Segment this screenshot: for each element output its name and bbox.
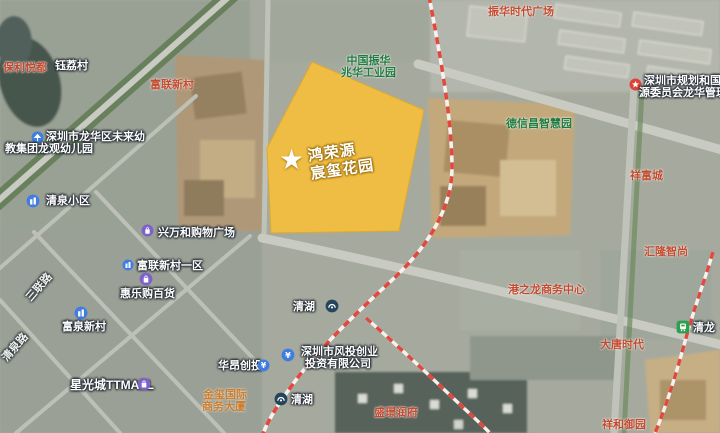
- poi-fengtou-company[interactable]: 深圳市风投创业 投资有限公司: [301, 346, 378, 370]
- poi-dexinchang-park[interactable]: 德信昌智慧园: [506, 118, 572, 130]
- fengtou-line1: 深圳市风投创业: [301, 346, 378, 358]
- planning-bureau-line2: 源委员会龙华管理局: [639, 87, 720, 99]
- finance-yen-icon: ¥: [281, 348, 295, 362]
- planning-bureau-line1: 深圳市规划和国土资: [644, 75, 720, 87]
- poi-qingquan-estate[interactable]: 清泉小区: [46, 195, 90, 207]
- jinxi-line2: 商务大厦: [202, 401, 247, 413]
- poi-fulian-district1[interactable]: 富联新村一区: [137, 260, 203, 272]
- tower-cluster: [335, 372, 527, 433]
- star-marker-icon: ★: [279, 146, 304, 174]
- poi-datang-times[interactable]: 大唐时代: [600, 339, 644, 351]
- poi-zhenhua-plaza[interactable]: 振华时代广场: [488, 6, 554, 18]
- kindergarten-line1: 深圳市龙华区未来幼: [46, 131, 145, 143]
- tram-icon[interactable]: [676, 320, 690, 334]
- shopping-bag-icon: [137, 377, 151, 391]
- poi-baoli-yuedu[interactable]: 保利悦都: [3, 62, 47, 74]
- fengtou-line2: 投资有限公司: [305, 358, 378, 370]
- poi-gangzhilong-center[interactable]: 港之龙商务中心: [508, 284, 585, 296]
- station-qinghu-mid[interactable]: 清湖: [293, 301, 315, 313]
- poi-xingwanhe-mall[interactable]: 兴万和购物广场: [158, 227, 235, 239]
- svg-text:¥: ¥: [261, 361, 267, 370]
- zhenhua-line1: 中国振华: [341, 55, 396, 67]
- poi-shengjing-mansion[interactable]: 盛璟润府: [374, 407, 418, 419]
- poi-jinxi-tower[interactable]: 金玺国际 商务大厦: [203, 389, 247, 413]
- station-qinghu-south[interactable]: 清湖: [291, 394, 313, 406]
- jinxi-line1: 金玺国际: [203, 389, 247, 401]
- poi-kindergarten[interactable]: 深圳市龙华区未来幼 教集团龙观幼儿园: [46, 131, 145, 155]
- poi-zhenhua-industrial-park[interactable]: 中国振华 兆华工业园: [341, 55, 396, 79]
- poi-huaang-vc[interactable]: 华昂创投: [218, 360, 262, 372]
- metro-icon[interactable]: [274, 392, 288, 406]
- zhenhua-line2: 兆华工业园: [341, 67, 396, 79]
- poi-xiangfu-city[interactable]: 祥富城: [630, 170, 663, 182]
- metro-icon[interactable]: [325, 299, 339, 313]
- station-qinglong[interactable]: 清龙: [693, 322, 715, 334]
- shopping-bag-icon: [139, 272, 153, 286]
- poi-fulian-xincun-north[interactable]: 富联新村: [150, 79, 194, 91]
- poi-xianghe-mansion[interactable]: 祥和御园: [602, 419, 646, 431]
- poi-yuli-village[interactable]: 钰荔村: [55, 60, 88, 72]
- finance-yen-icon: ¥: [257, 359, 270, 372]
- kindergarten-line2: 教集团龙观幼儿园: [5, 143, 145, 155]
- residence-icon: [26, 194, 40, 208]
- poi-planning-bureau[interactable]: 深圳市规划和国土资 源委员会龙华管理局: [644, 75, 720, 99]
- shopping-bag-icon: [141, 224, 154, 237]
- residence-icon: [122, 259, 134, 271]
- poi-huilong-zhishang[interactable]: 汇隆智尚: [644, 246, 688, 258]
- svg-text:¥: ¥: [285, 350, 291, 360]
- map-canvas[interactable]: ★ 鸿荣源 宸玺花园 保利悦都 钰荔村 富联新村 振华时代广场 中国振华 兆华工…: [0, 0, 720, 433]
- residence-icon: [74, 306, 88, 320]
- poi-fuquan-xincun[interactable]: 富泉新村: [62, 321, 106, 333]
- construction-site-southeast: [645, 350, 720, 433]
- poi-huilegou-store[interactable]: 惠乐购百货: [120, 288, 175, 300]
